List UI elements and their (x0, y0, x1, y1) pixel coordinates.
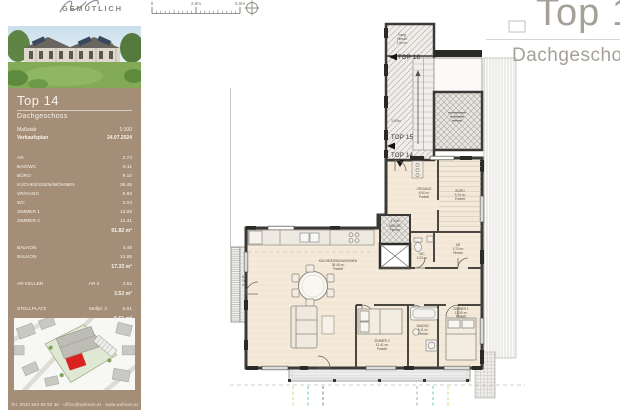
sidebar: GEMÜTLICH (8, 0, 141, 410)
meta-label: Verkaufsplan (17, 134, 48, 142)
table-row: BAD/WC5.11 (17, 163, 132, 172)
label-ar-3: Fliesen (453, 251, 464, 255)
neighbor-room (434, 50, 482, 150)
table-row: BÜRO9.10 (17, 172, 132, 181)
title-divider (486, 39, 620, 40)
meta-row: Maßstab 1:100 (17, 126, 132, 134)
unit-subtitle: Dachgeschoss (17, 113, 132, 120)
cellar-total: 3.52 m² (17, 289, 132, 299)
brand-logo: GEMÜTLICH (8, 0, 141, 26)
brand-name: GEMÜTLICH (62, 4, 123, 13)
label-kueche-3: Parkett (333, 267, 343, 271)
area-table: AR2.73 BAD/WC5.11 BÜRO9.10 KÜCHE/ESSEN/W… (17, 154, 132, 324)
table-row: ZIMMER 212.41 (17, 217, 132, 226)
meta-row: Verkaufsplan 24.07.2024 (17, 134, 132, 142)
divider (17, 110, 132, 111)
scale-tick-25: 2,5m (191, 1, 201, 6)
meta-label: Maßstab (17, 126, 36, 134)
unit-title: Top 14 (17, 93, 132, 108)
wardrobe (412, 161, 423, 178)
page-subtitle: Dachgeschoss (512, 45, 620, 67)
label-zimmer1-3: Parkett (456, 315, 466, 319)
core-bath-label-2: Fliesen (390, 228, 401, 232)
stairwell: Gang Fliesen 1.50 m² TOP 16 3.80m TOP 15… (384, 24, 434, 167)
table-row: AR KELLER AR 2 3.52 (17, 280, 132, 289)
page: { "brand": {"name": "GEMÜTLICH"}, "sideb… (0, 0, 620, 410)
table-row: KÜCHE/ESSEN/WOHNEN38.45 (17, 181, 132, 190)
meta-value: 24.07.2024 (107, 134, 132, 142)
meta-value: 1:100 (119, 126, 132, 134)
scale-tick-50: 5,0m (235, 1, 245, 6)
table-row: VR/GANG8.90 (17, 190, 132, 199)
table-row: BALKON4.48 (17, 244, 132, 253)
building-core: 1.00m BAD/WC Fliesen (380, 215, 410, 268)
page-title: Top 14 (536, 0, 620, 35)
table-row: WC2.03 (17, 199, 132, 208)
label-buero-3: Parkett (455, 197, 465, 201)
core-bath-dim: 1.00m (391, 219, 400, 223)
label-vr-3: Parkett (419, 195, 429, 199)
table-row: ZIMMER 113.09 (17, 208, 132, 217)
top16-label: TOP 16 (398, 55, 421, 61)
legend-box (509, 21, 525, 32)
compass-icon (245, 1, 260, 16)
kitchen-counter (248, 230, 374, 245)
outdoor-area-total: 17.33 m² (17, 262, 132, 272)
bed-zimmer1 (446, 318, 476, 360)
building-photo (8, 26, 141, 88)
bed-zimmer2 (358, 309, 402, 334)
contact-footer: Tel. 0043 664 88 50 36 · office@wohnen.a… (8, 402, 141, 407)
site-plan (14, 318, 135, 390)
gang-label-3: 1.50 m² (397, 41, 408, 45)
sidebar-panel: Top 14 Dachgeschoss Maßstab 1:100 Verkau… (8, 88, 141, 410)
roof-strip-right (484, 58, 516, 358)
elevator (380, 244, 410, 268)
table-row: AR2.73 (17, 154, 132, 163)
label-zimmer2-3: Parkett (377, 347, 387, 351)
table-row: STELLPLATZ Stellpl. 2 5.61 (17, 305, 132, 314)
table-row: BALKON12.85 (17, 253, 132, 262)
label-bad-3: Fliesen (418, 332, 429, 336)
scale-tick-0: 0 (151, 1, 154, 6)
scale-bar: 0 2,5m 5,0m (151, 1, 246, 14)
living-area-total: 91.82 m² (17, 226, 132, 236)
label-wc-2: 2.03 m² (417, 256, 428, 260)
stair-dimension: 3.80m (391, 119, 401, 123)
meta-block: Maßstab 1:100 Verkaufsplan 24.07.2024 (17, 126, 132, 142)
top15-label: TOP 15 (391, 135, 414, 141)
